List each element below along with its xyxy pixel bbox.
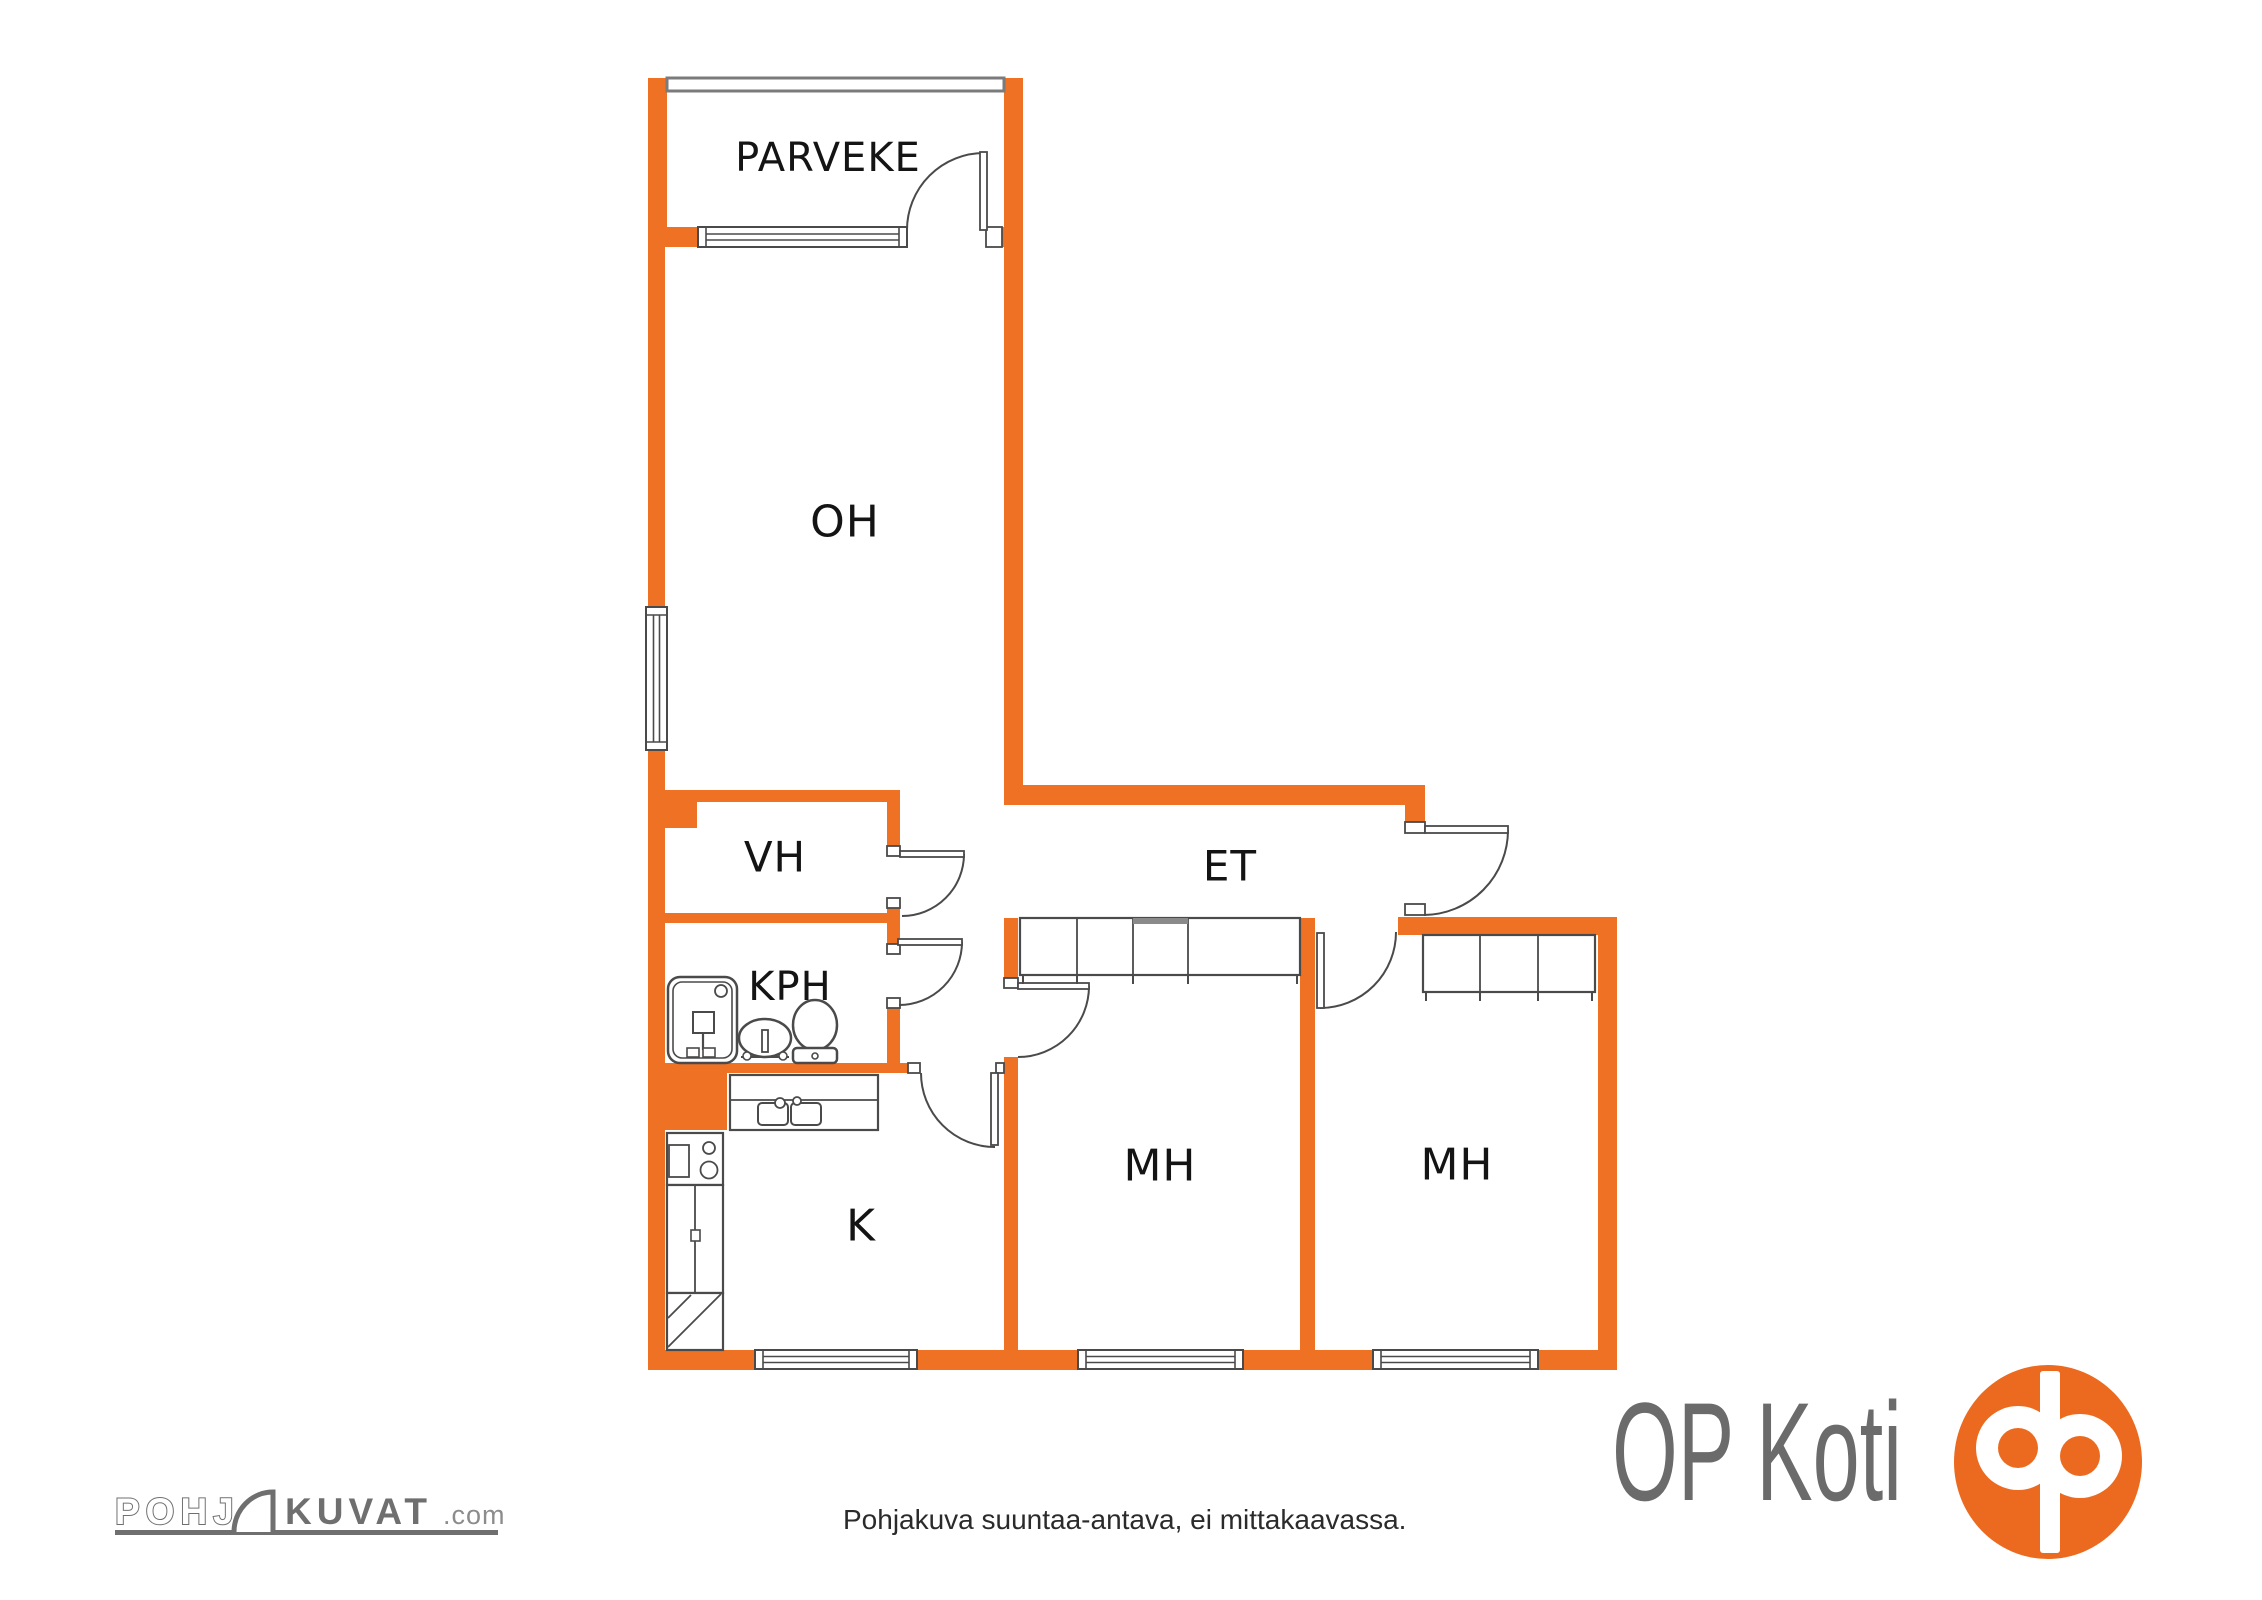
mh1-door-leaf bbox=[1018, 983, 1089, 989]
vh-door-swing-arc bbox=[902, 854, 964, 916]
op-logo-left-hole bbox=[1998, 1428, 2038, 1468]
entry-stub bbox=[1405, 805, 1425, 822]
balcony-window bbox=[698, 227, 907, 247]
kitchen-faucet bbox=[775, 1098, 785, 1108]
shower-mixer bbox=[693, 1012, 714, 1033]
west-wall-lower bbox=[648, 1130, 665, 1370]
kitchen-faucet bbox=[793, 1097, 801, 1105]
south-wall-4 bbox=[1538, 1350, 1617, 1370]
sink-tap bbox=[762, 1030, 768, 1052]
door-jamb bbox=[887, 898, 900, 908]
mh2-door-swing-arc bbox=[1320, 932, 1396, 1008]
vh-east-wall-upper bbox=[887, 802, 900, 846]
kitchen-window bbox=[755, 1350, 917, 1369]
mh1-window bbox=[1078, 1350, 1243, 1369]
balcony-wall-right bbox=[1004, 78, 1023, 227]
kitchen-sink-basin bbox=[791, 1103, 821, 1125]
mh-divider-wall bbox=[1300, 918, 1315, 1350]
sink-knob bbox=[779, 1052, 787, 1060]
mh1-west-wall bbox=[1004, 1057, 1018, 1370]
op-koti-text: OP Koti bbox=[1612, 1388, 1902, 1530]
south-wall-2 bbox=[917, 1350, 1078, 1370]
stove-burner bbox=[701, 1162, 718, 1179]
entry-door-swing-arc bbox=[1424, 830, 1508, 915]
op-logo-icon bbox=[1950, 1363, 2146, 1563]
mh2-closets bbox=[1423, 935, 1595, 992]
room-label-vh: VH bbox=[744, 833, 806, 882]
pohjakuvat-door-icon bbox=[234, 1492, 273, 1532]
entry-door-leaf bbox=[1425, 826, 1508, 833]
op-logo-right-hole bbox=[2060, 1436, 2100, 1476]
pohjakuvat-prefix-text: POHJ bbox=[115, 1491, 240, 1532]
kitchen-door-swing-arc bbox=[921, 1073, 995, 1147]
door-jamb bbox=[887, 998, 900, 1008]
balcony-door-leaf bbox=[980, 152, 987, 230]
kph-door-leaf bbox=[898, 939, 962, 945]
room-label-mh1: MH bbox=[1123, 1141, 1196, 1192]
mh2-east-wall bbox=[1598, 935, 1617, 1370]
stove-burner bbox=[703, 1142, 715, 1154]
room-label-parveke: PARVEKE bbox=[735, 135, 921, 181]
kitchen-door-leaf bbox=[991, 1073, 998, 1145]
oh-west-window bbox=[646, 607, 667, 750]
vh-corner-block bbox=[665, 802, 697, 828]
vh-door-leaf bbox=[900, 851, 964, 857]
vh-north-wall bbox=[648, 790, 900, 802]
sink-knob bbox=[743, 1052, 751, 1060]
mh1-door-swing-arc bbox=[1018, 986, 1089, 1057]
et-south-wall-east bbox=[1398, 917, 1617, 935]
kitchen-corner-block bbox=[648, 1063, 727, 1130]
room-label-k: K bbox=[846, 1201, 876, 1252]
south-wall-3 bbox=[1243, 1350, 1373, 1370]
floorplan-drawing: PARVEKEOHVHKPHETKMHMH bbox=[0, 0, 2262, 1600]
balcony-wall-left bbox=[648, 78, 667, 227]
kph-door-swing-arc bbox=[899, 942, 962, 1005]
shower-handle bbox=[687, 1048, 699, 1057]
balcony-railing bbox=[667, 78, 1004, 91]
disclaimer-text: Pohjakuva suuntaa-antava, ei mittakaavas… bbox=[843, 1504, 1406, 1536]
door-jamb bbox=[1004, 978, 1018, 988]
vh-south-wall bbox=[648, 913, 887, 923]
pohjakuvat-suffix-text: KUVAT bbox=[285, 1491, 432, 1532]
fridge-handle bbox=[691, 1230, 700, 1241]
kph-south-wall bbox=[648, 1063, 920, 1073]
op-koti-wordmark: OP Koti bbox=[1612, 1388, 1922, 1538]
south-wall-1 bbox=[648, 1350, 755, 1370]
mh2-door-leaf bbox=[1317, 933, 1324, 1008]
mh1-closets bbox=[1020, 918, 1300, 975]
mh2-window bbox=[1373, 1350, 1538, 1369]
et-north-wall bbox=[1004, 785, 1425, 805]
pohjakuvat-tld-text: .com bbox=[443, 1500, 506, 1530]
room-label-et: ET bbox=[1203, 842, 1257, 891]
oh-east-wall bbox=[1004, 247, 1023, 805]
floorplan-page: PARVEKEOHVHKPHETKMHMH POHJ KUVAT .com Po… bbox=[0, 0, 2262, 1600]
stove-oven bbox=[669, 1145, 689, 1177]
shower-drain bbox=[715, 985, 727, 997]
door-jamb bbox=[1405, 822, 1425, 833]
door-jamb bbox=[986, 227, 1002, 247]
toilet-button bbox=[812, 1053, 818, 1059]
room-label-kph: KPH bbox=[748, 964, 831, 1010]
room-label-mh2: MH bbox=[1420, 1140, 1493, 1191]
oh-top-wall-left bbox=[648, 227, 700, 247]
west-wall-upper bbox=[648, 247, 665, 607]
door-jamb bbox=[908, 1063, 920, 1073]
pohjakuvat-logo: POHJ KUVAT .com bbox=[113, 1486, 513, 1542]
shower-handle bbox=[703, 1048, 715, 1057]
door-jamb bbox=[996, 1063, 1004, 1073]
door-jamb bbox=[887, 846, 900, 856]
room-label-oh: OH bbox=[810, 497, 880, 548]
door-jamb bbox=[1405, 904, 1425, 915]
